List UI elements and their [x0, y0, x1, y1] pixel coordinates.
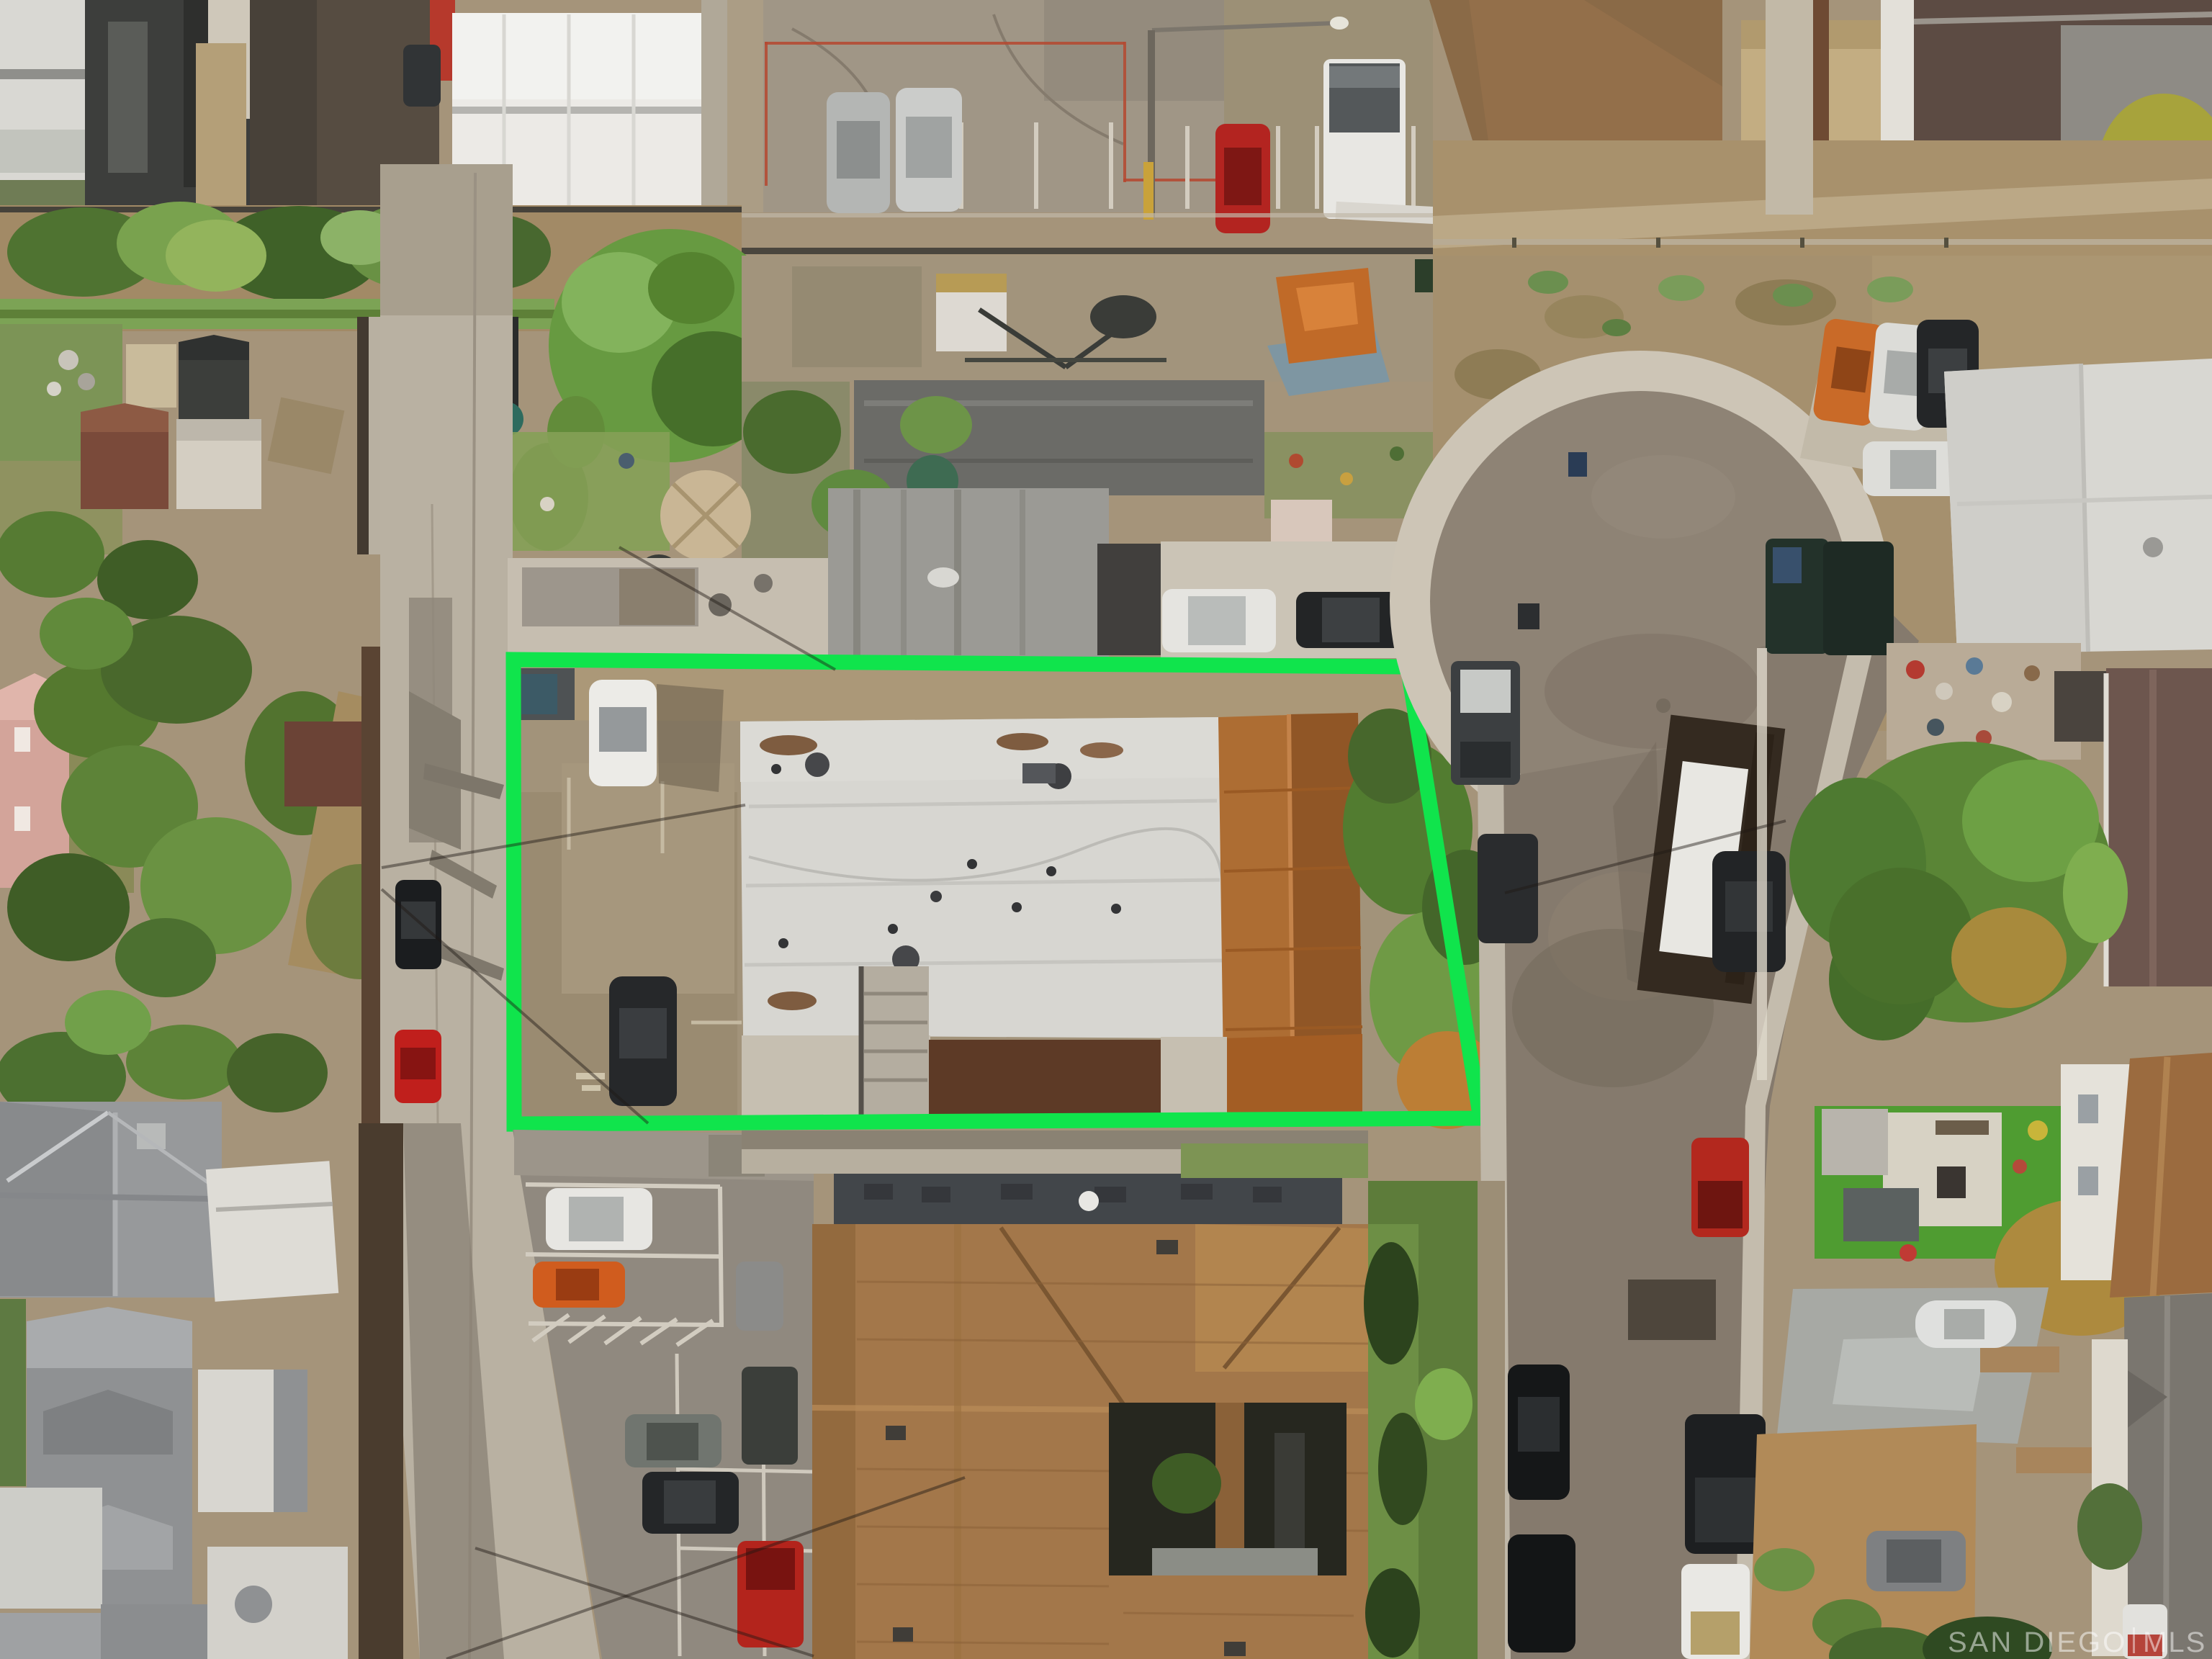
svg-text:SAN DIEGO: SAN DIEGO: [1948, 1627, 2127, 1658]
svg-text:MLS: MLS: [2143, 1627, 2206, 1658]
